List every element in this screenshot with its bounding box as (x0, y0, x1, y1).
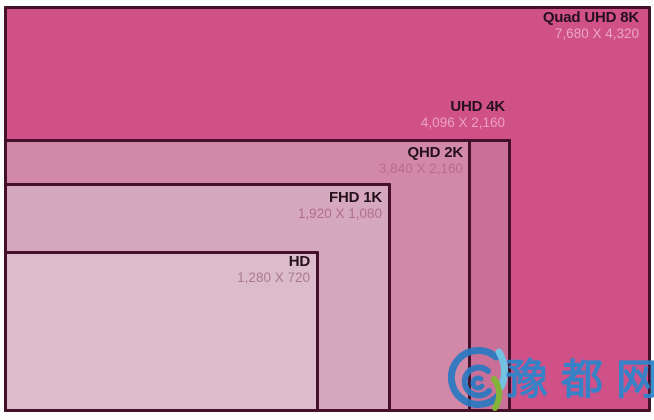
watermark-spiral-logo-icon (438, 344, 510, 416)
label-fhd-1k-resolution: 1,920 X 1,080 (298, 206, 382, 221)
label-quad-uhd-8k: Quad UHD 8K 7,680 X 4,320 (543, 10, 639, 41)
label-quad-uhd-8k-resolution: 7,680 X 4,320 (543, 26, 639, 41)
watermark: 豫都网 (438, 344, 654, 416)
watermark-text: 豫都网 (506, 346, 654, 407)
label-qhd-2k-resolution: 3,840 X 2,160 (379, 161, 463, 176)
label-qhd-2k-title: QHD 2K (379, 145, 463, 160)
label-uhd-4k: UHD 4K 4,096 X 2,160 (421, 99, 505, 130)
label-hd: HD 1,280 X 720 (237, 254, 310, 285)
resolution-comparison-diagram: Quad UHD 8K 7,680 X 4,320 UHD 4K 4,096 X… (0, 0, 654, 420)
label-quad-uhd-8k-title: Quad UHD 8K (543, 10, 639, 25)
label-qhd-2k: QHD 2K 3,840 X 2,160 (379, 145, 463, 176)
label-uhd-4k-title: UHD 4K (421, 99, 505, 114)
label-fhd-1k: FHD 1K 1,920 X 1,080 (298, 190, 382, 221)
label-hd-resolution: 1,280 X 720 (237, 270, 310, 285)
label-hd-title: HD (237, 254, 310, 269)
label-uhd-4k-resolution: 4,096 X 2,160 (421, 115, 505, 130)
label-fhd-1k-title: FHD 1K (298, 190, 382, 205)
